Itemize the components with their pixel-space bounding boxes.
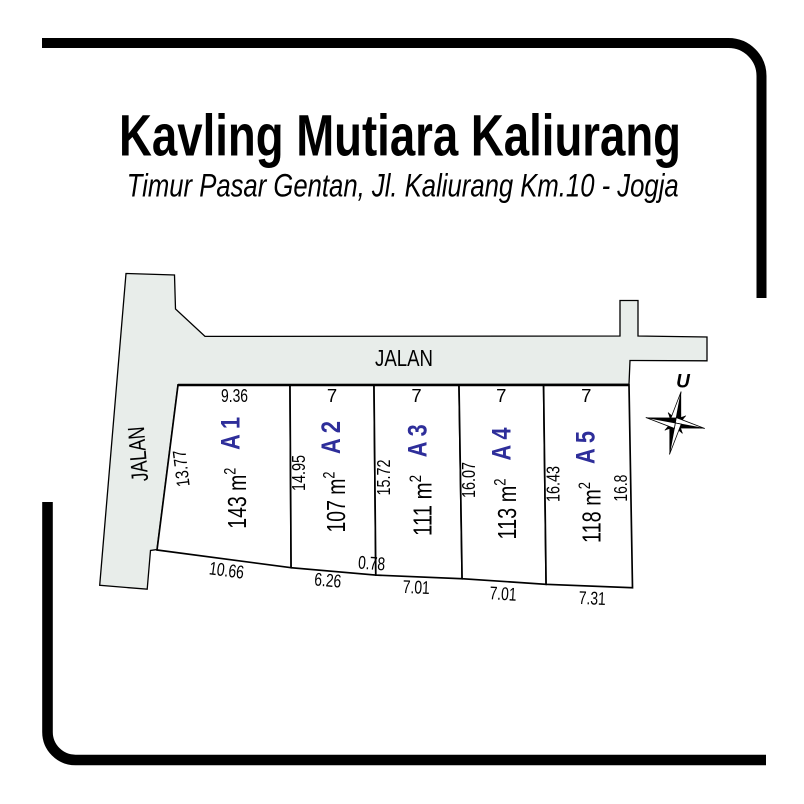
svg-text:Kavling Mutiara Kaliurang: Kavling Mutiara Kaliurang [119,103,681,168]
svg-text:0.78: 0.78 [357,552,385,575]
svg-text:A 1: A 1 [216,417,246,450]
svg-text:7: 7 [327,385,337,406]
svg-text:A 2: A 2 [316,421,346,454]
svg-text:107 m2: 107 m2 [320,472,352,533]
svg-text:7.01: 7.01 [402,576,430,598]
svg-text:JALAN: JALAN [375,345,433,371]
svg-text:143 m2: 143 m2 [221,468,253,529]
svg-text:JALAN: JALAN [123,426,153,483]
svg-text:13.77: 13.77 [168,449,193,488]
svg-text:16.8: 16.8 [610,475,631,502]
svg-text:113 m2: 113 m2 [491,479,523,540]
svg-text:16.07: 16.07 [458,462,479,498]
svg-text:118 m2: 118 m2 [575,482,607,543]
svg-text:16.43: 16.43 [543,466,564,502]
svg-text:A 4: A 4 [487,428,517,461]
svg-text:111 m2: 111 m2 [406,475,438,536]
svg-text:14.95: 14.95 [288,455,309,491]
svg-text:9.36: 9.36 [221,385,248,406]
svg-text:15.72: 15.72 [373,460,394,496]
svg-text:7.31: 7.31 [578,587,606,609]
svg-text:7: 7 [496,385,506,406]
svg-text:A 3: A 3 [403,424,433,457]
svg-text:Timur Pasar Gentan, Jl. Kaliur: Timur Pasar Gentan, Jl. Kaliurang Km.10 … [127,167,679,203]
svg-text:7: 7 [411,385,421,406]
svg-text:6.26: 6.26 [314,568,343,591]
svg-text:7: 7 [581,385,591,406]
svg-text:U: U [676,372,691,393]
svg-text:7.01: 7.01 [489,582,517,605]
svg-text:A 5: A 5 [571,431,601,464]
